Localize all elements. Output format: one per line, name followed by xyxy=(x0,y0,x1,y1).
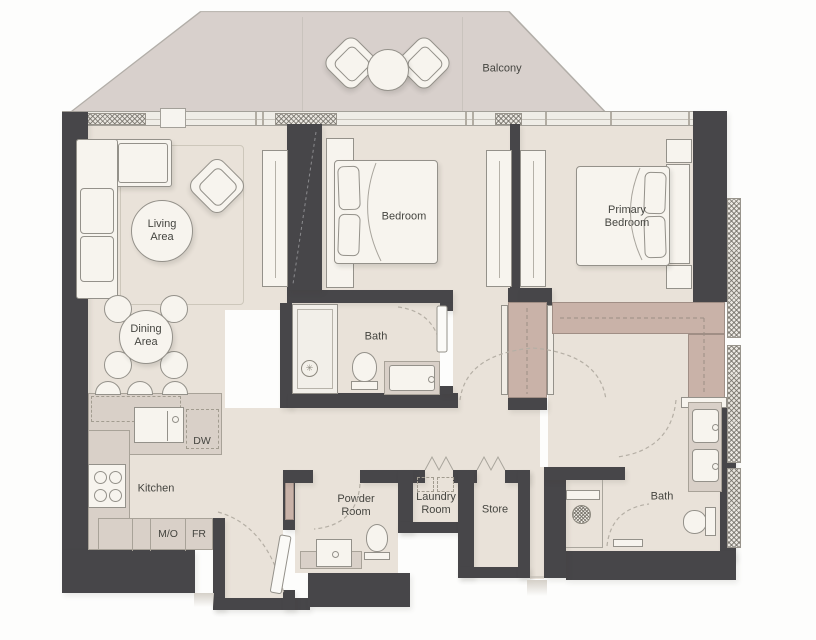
window-mullion xyxy=(545,112,547,125)
window-mullion xyxy=(688,112,690,125)
counter-divider xyxy=(132,519,133,551)
exterior-hatch-strip xyxy=(727,198,741,338)
wall-laundry-bottom xyxy=(398,522,462,533)
vanity-sink xyxy=(692,449,719,482)
washer-dryer xyxy=(417,477,434,492)
dishwasher-label: DW xyxy=(193,435,211,447)
wardrobe-handle-line xyxy=(533,161,534,278)
towel-bar xyxy=(613,539,643,547)
primary-closet-return xyxy=(688,334,725,398)
microwave-oven-label: M/O xyxy=(158,528,178,540)
shower-inner-line xyxy=(297,309,333,389)
room-label-dining-area: Dining Area xyxy=(123,323,169,349)
wall-kitchen-bottom xyxy=(62,550,195,593)
hall-closet-door xyxy=(501,305,508,395)
wardrobe xyxy=(262,150,288,287)
shower xyxy=(292,304,338,394)
opening-shadow xyxy=(194,593,214,607)
window-glass-line xyxy=(62,119,693,120)
shower-screen-line xyxy=(566,547,603,548)
counter-divider xyxy=(150,519,151,551)
powder-sink-cabinet xyxy=(316,539,352,567)
nightstand xyxy=(666,139,692,163)
window-mullion xyxy=(472,112,474,125)
room-label-kitchen: Kitchen xyxy=(138,483,175,496)
balcony-joint-line xyxy=(302,17,303,115)
vanity-sink xyxy=(389,365,435,391)
window-mullion xyxy=(610,112,612,125)
toilet xyxy=(366,524,388,552)
window-mullion xyxy=(262,112,264,125)
hall-closet xyxy=(508,302,547,398)
wall-living-bedroom-divider xyxy=(287,124,322,290)
shower-shelf xyxy=(566,490,600,500)
floorplan-canvas: Balcony xyxy=(0,0,816,640)
balcony-joint-line xyxy=(462,17,463,115)
sink-faucet xyxy=(172,416,179,423)
sofa-cushion xyxy=(118,143,168,183)
wall-ensuite-left xyxy=(544,480,566,578)
wall-bath-bottom xyxy=(288,393,458,408)
burner xyxy=(94,489,107,502)
nightstand xyxy=(666,265,692,289)
burner xyxy=(109,471,122,484)
wall-corridor-step xyxy=(213,518,225,610)
wall-bath-door-cap xyxy=(440,303,453,311)
pillow xyxy=(337,214,360,257)
wall-bath-top xyxy=(287,290,453,303)
room-label-ensuite-bathroom: Bath xyxy=(651,491,674,504)
toilet-tank xyxy=(364,552,390,560)
washer-dryer xyxy=(437,477,454,492)
wall-bottom-band xyxy=(213,598,310,610)
sink-faucet xyxy=(428,376,435,383)
sink-faucet xyxy=(332,551,339,558)
pillow xyxy=(337,166,361,211)
room-label-bedroom: Bedroom xyxy=(382,211,427,224)
toilet-tank xyxy=(351,381,378,390)
wall-closet-cap-bottom xyxy=(508,398,547,410)
fridge-label: FR xyxy=(192,528,206,540)
toilet xyxy=(352,352,377,382)
sink-divider-line xyxy=(167,411,168,441)
wall-laundry-store xyxy=(458,470,474,578)
shower-drain: ✳ xyxy=(301,360,318,377)
wall-utility-top xyxy=(283,470,313,483)
room-label-store: Store xyxy=(482,504,508,517)
toilet xyxy=(683,510,707,534)
window-mullion xyxy=(255,112,257,125)
room-label-laundry-room: Laundry Room xyxy=(410,491,462,517)
counter-divider xyxy=(185,519,186,551)
floor-store xyxy=(474,483,518,567)
primary-closet-run xyxy=(552,302,725,334)
sofa-cushion xyxy=(80,188,114,234)
burner xyxy=(94,471,107,484)
wall-powder-bottom xyxy=(308,573,410,607)
entry-opening-shadow xyxy=(527,580,547,596)
window-mullion xyxy=(465,112,467,125)
wardrobe xyxy=(486,150,512,287)
wall-utility-top xyxy=(360,470,425,483)
room-label-powder-room: Powder Room xyxy=(324,493,388,519)
wardrobe-handle-line xyxy=(275,161,276,278)
room-label-balcony: Balcony xyxy=(482,63,521,76)
wall-right-exterior xyxy=(693,111,727,302)
sink-faucet xyxy=(712,424,719,431)
shower-drain xyxy=(572,505,591,524)
wall-pier xyxy=(160,108,186,128)
sink-faucet xyxy=(712,463,719,470)
toilet-tank xyxy=(705,507,716,536)
burner xyxy=(109,489,122,502)
shower-screen-line xyxy=(602,480,603,548)
floor-bedroom-vestibule xyxy=(453,303,508,408)
room-label-bathroom: Bath xyxy=(365,331,388,344)
wardrobe xyxy=(520,150,546,287)
wardrobe-handle-line xyxy=(499,161,500,278)
wall-ensuite-top xyxy=(544,467,625,480)
exterior-hatch-strip xyxy=(727,345,741,463)
wall-powder-left-lower xyxy=(283,590,295,610)
room-label-primary-bedroom: Primary Bedroom xyxy=(589,204,665,230)
wall-store-right xyxy=(518,470,530,578)
wall-bath-door-cap xyxy=(440,386,453,394)
room-label-living-area: Living Area xyxy=(139,218,185,244)
window-band xyxy=(62,111,693,126)
balcony-table xyxy=(367,49,409,91)
wall-ensuite-bottom xyxy=(566,551,736,580)
cooktop xyxy=(88,464,126,508)
sofa-cushion xyxy=(80,236,114,282)
kitchen-sink xyxy=(134,407,184,443)
floor-entry-corridor xyxy=(530,467,544,579)
exterior-hatch-strip xyxy=(727,468,741,548)
vanity-sink xyxy=(692,409,719,443)
